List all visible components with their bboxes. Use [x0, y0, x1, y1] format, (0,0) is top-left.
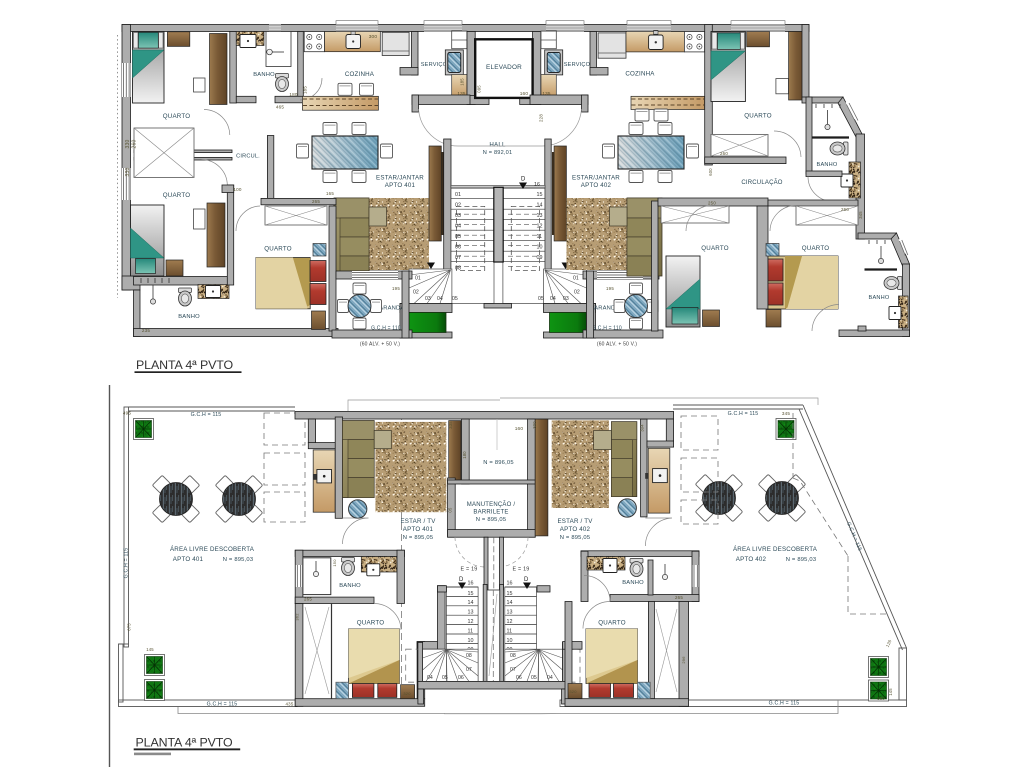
svg-text:265: 265 [312, 199, 320, 204]
svg-text:02: 02 [574, 290, 580, 296]
svg-text:01: 01 [415, 276, 421, 282]
svg-text:345: 345 [858, 211, 863, 219]
svg-text:03: 03 [425, 296, 431, 302]
svg-text:330: 330 [125, 140, 131, 149]
svg-text:675: 675 [127, 623, 132, 631]
svg-text:07: 07 [510, 667, 516, 673]
svg-text:185: 185 [303, 86, 308, 94]
svg-text:14: 14 [507, 600, 513, 606]
svg-text:600: 600 [708, 168, 713, 176]
svg-text:BANHO: BANHO [869, 295, 890, 301]
svg-text:185: 185 [460, 78, 465, 86]
svg-text:12: 12 [537, 224, 543, 230]
svg-text:BANHO: BANHO [253, 72, 275, 78]
svg-text:11: 11 [468, 628, 474, 634]
svg-text:580: 580 [877, 696, 885, 701]
svg-text:ELEVADOR: ELEVADOR [486, 64, 522, 71]
svg-text:G.C.H = 115: G.C.H = 115 [207, 702, 238, 708]
svg-text:150: 150 [332, 559, 337, 567]
svg-text:16: 16 [534, 182, 540, 188]
svg-text:N = 895,05: N = 895,05 [403, 535, 434, 541]
svg-text:N = 892,01: N = 892,01 [483, 150, 513, 156]
svg-text:15: 15 [507, 591, 513, 597]
svg-text:228: 228 [539, 114, 544, 122]
svg-text:G.C.H = 115: G.C.H = 115 [124, 548, 130, 579]
svg-text:260: 260 [720, 151, 728, 156]
svg-text:320: 320 [403, 691, 411, 696]
svg-text:16: 16 [468, 581, 474, 587]
svg-text:COZINHA: COZINHA [625, 71, 655, 78]
svg-text:N = 895,05: N = 895,05 [476, 517, 507, 523]
svg-text:160: 160 [520, 91, 529, 97]
svg-text:04: 04 [427, 675, 433, 681]
svg-text:N = 896,05: N = 896,05 [483, 460, 514, 466]
svg-text:ESTAR / TV: ESTAR / TV [557, 518, 593, 525]
svg-text:09: 09 [537, 255, 543, 261]
svg-text:160: 160 [515, 426, 524, 432]
svg-text:300: 300 [532, 421, 537, 429]
svg-text:03: 03 [455, 213, 461, 219]
svg-text:05: 05 [442, 675, 448, 681]
svg-text:N = 895,05: N = 895,05 [560, 535, 591, 541]
svg-text:BANHO: BANHO [178, 314, 200, 320]
svg-text:HALL: HALL [489, 142, 506, 149]
svg-text:E = 19: E = 19 [461, 567, 478, 573]
svg-text:05: 05 [531, 675, 537, 681]
svg-text:APTO 401: APTO 401 [173, 556, 204, 563]
svg-text:260: 260 [841, 207, 849, 212]
svg-text:04: 04 [437, 296, 443, 302]
svg-text:BANHO: BANHO [817, 162, 838, 168]
svg-text:05: 05 [538, 296, 544, 302]
svg-text:08: 08 [466, 653, 472, 659]
svg-text:APTO 402: APTO 402 [581, 182, 612, 189]
svg-text:14: 14 [468, 600, 474, 606]
svg-text:265: 265 [675, 595, 683, 600]
svg-text:CIRCULAÇÃO: CIRCULAÇÃO [741, 179, 782, 186]
svg-text:330: 330 [125, 168, 131, 177]
svg-text:MANUTENÇÃO /: MANUTENÇÃO / [467, 501, 516, 508]
svg-text:QUARTO: QUARTO [163, 192, 190, 199]
svg-text:195: 195 [392, 286, 400, 291]
svg-text:G.C.H = 115: G.C.H = 115 [191, 412, 222, 418]
svg-text:COZINHA: COZINHA [345, 71, 375, 78]
svg-text:320: 320 [569, 689, 577, 694]
svg-text:N = 895,03: N = 895,03 [223, 557, 254, 563]
svg-text:15: 15 [468, 591, 474, 597]
svg-text:BANHO: BANHO [339, 583, 361, 589]
svg-text:05: 05 [455, 234, 461, 240]
svg-text:12: 12 [468, 619, 474, 625]
svg-text:180: 180 [289, 92, 298, 97]
svg-text:QUARTO: QUARTO [264, 246, 291, 253]
svg-text:BARRILETE: BARRILETE [473, 510, 508, 516]
svg-text:01: 01 [573, 276, 579, 282]
svg-text:06: 06 [455, 245, 461, 251]
svg-text:PLANTA 4ª PVTO: PLANTA 4ª PVTO [136, 358, 234, 372]
svg-text:APTO 401: APTO 401 [385, 182, 416, 189]
svg-text:06: 06 [516, 675, 522, 681]
svg-text:11: 11 [537, 234, 543, 240]
svg-text:195: 195 [606, 286, 614, 291]
svg-text:APTO 401: APTO 401 [403, 526, 434, 533]
svg-text:435: 435 [286, 702, 294, 707]
svg-text:APTO 402: APTO 402 [560, 526, 591, 533]
svg-text:D: D [521, 177, 526, 183]
svg-text:14: 14 [537, 203, 543, 209]
svg-text:D: D [459, 577, 464, 583]
svg-text:345: 345 [782, 411, 791, 416]
svg-text:QUARTO: QUARTO [701, 245, 728, 252]
svg-text:06: 06 [458, 675, 464, 681]
svg-text:SERVIÇO: SERVIÇO [564, 62, 591, 68]
svg-text:QUARTO: QUARTO [744, 113, 771, 120]
svg-text:145: 145 [888, 688, 893, 696]
svg-text:D: D [524, 577, 529, 583]
svg-text:10: 10 [468, 638, 474, 644]
svg-text:235: 235 [142, 328, 151, 333]
svg-text:ÁREA LIVRE DESCOBERTA: ÁREA LIVRE DESCOBERTA [733, 546, 818, 553]
svg-text:ESTAR/JANTAR: ESTAR/JANTAR [376, 175, 424, 182]
svg-text:13: 13 [537, 213, 543, 219]
svg-text:(60 ALV. + 50 V.): (60 ALV. + 50 V.) [360, 342, 400, 348]
svg-text:04: 04 [455, 224, 461, 230]
svg-text:250: 250 [708, 201, 716, 206]
svg-text:265: 265 [304, 597, 312, 602]
svg-text:13: 13 [468, 610, 474, 616]
svg-text:05: 05 [448, 507, 453, 513]
svg-text:04: 04 [550, 296, 556, 302]
svg-text:07: 07 [455, 255, 461, 261]
svg-text:G.C.H = 115: G.C.H = 115 [769, 701, 800, 707]
svg-text:260: 260 [132, 140, 138, 149]
svg-text:03: 03 [563, 296, 569, 302]
svg-text:495: 495 [123, 411, 132, 416]
svg-text:QUARTO: QUARTO [357, 620, 384, 627]
svg-text:PLANTA 4ª PVTO: PLANTA 4ª PVTO [136, 735, 234, 749]
svg-text:QUARTO: QUARTO [163, 113, 190, 120]
svg-text:(60 ALV. + 50 V.): (60 ALV. + 50 V.) [597, 342, 637, 348]
svg-text:ÁREA LIVRE DESCOBERTA: ÁREA LIVRE DESCOBERTA [170, 546, 255, 553]
svg-text:10: 10 [537, 245, 543, 251]
svg-text:095: 095 [477, 85, 482, 93]
svg-text:07: 07 [466, 667, 472, 673]
svg-text:465: 465 [276, 105, 285, 110]
svg-text:304: 304 [640, 424, 645, 432]
svg-text:08: 08 [510, 653, 516, 659]
svg-text:180: 180 [462, 451, 467, 459]
svg-text:335: 335 [448, 421, 453, 429]
svg-text:01: 01 [455, 192, 461, 198]
svg-text:08: 08 [455, 266, 461, 272]
svg-text:15: 15 [537, 192, 543, 198]
svg-text:02: 02 [455, 203, 461, 209]
svg-text:13: 13 [507, 610, 513, 616]
svg-text:300: 300 [369, 34, 378, 40]
svg-text:296: 296 [681, 656, 686, 664]
svg-text:ESTAR/JANTAR: ESTAR/JANTAR [572, 175, 620, 182]
svg-text:11: 11 [507, 628, 513, 634]
svg-text:BANHO: BANHO [622, 580, 644, 586]
svg-text:145: 145 [146, 647, 154, 652]
svg-text:16: 16 [507, 581, 513, 587]
svg-text:100: 100 [233, 187, 242, 192]
svg-text:02: 02 [413, 290, 419, 296]
svg-text:362: 362 [295, 613, 300, 621]
svg-text:CIRCUL.: CIRCUL. [236, 153, 260, 159]
svg-text:QUARTO: QUARTO [802, 245, 829, 252]
svg-text:APTO 402: APTO 402 [736, 556, 767, 563]
svg-text:04: 04 [547, 675, 553, 681]
svg-text:12: 12 [507, 619, 513, 625]
svg-text:10: 10 [507, 638, 513, 644]
svg-text:N = 895,03: N = 895,03 [786, 557, 817, 563]
svg-text:G.C.H = 115: G.C.H = 115 [728, 411, 759, 417]
svg-text:SERVIÇO: SERVIÇO [421, 62, 448, 68]
svg-text:165: 165 [326, 191, 334, 196]
svg-text:E = 19: E = 19 [513, 567, 530, 573]
svg-text:05: 05 [452, 296, 458, 302]
svg-text:QUARTO: QUARTO [598, 620, 625, 627]
svg-text:ESTAR / TV: ESTAR / TV [400, 518, 436, 525]
